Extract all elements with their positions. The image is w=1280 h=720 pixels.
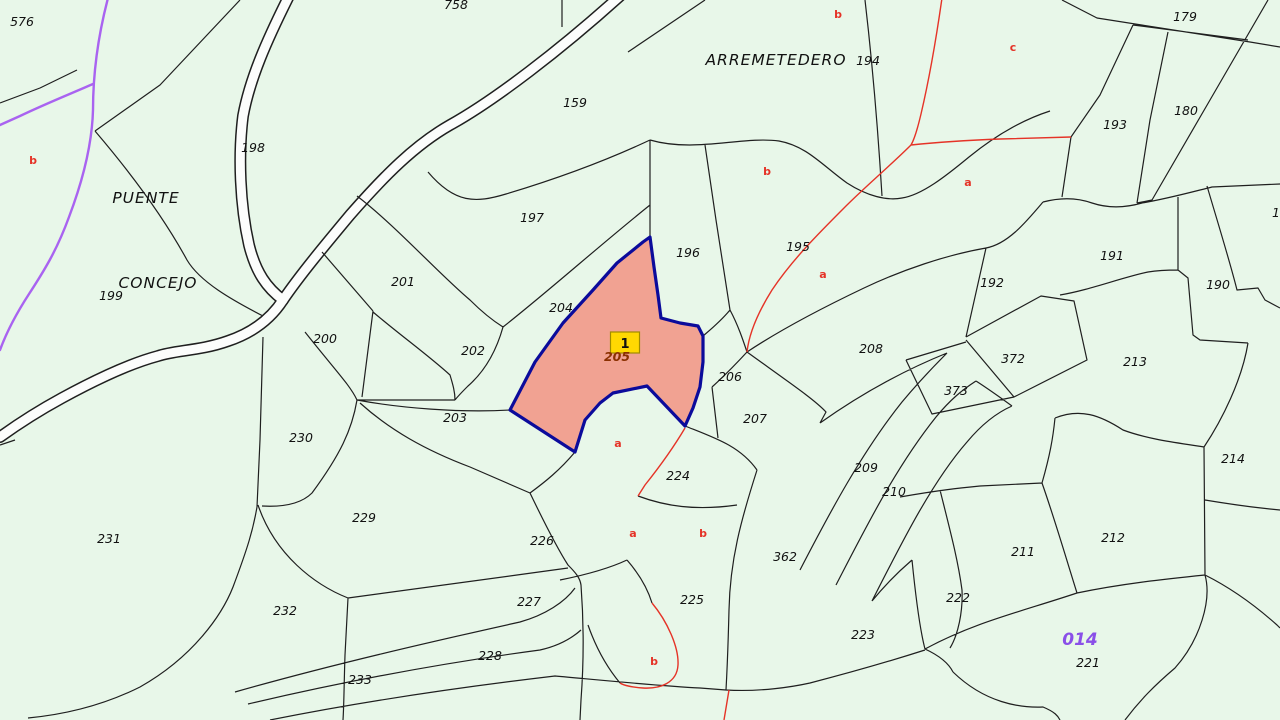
zone-number: 014 bbox=[1062, 630, 1098, 650]
parcel-label: 180 bbox=[1174, 103, 1198, 118]
place-name-label: ARREMETEDERO bbox=[704, 51, 846, 69]
subdivision-letter: b bbox=[650, 655, 658, 668]
parcel-label: 210 bbox=[882, 484, 906, 499]
parcel-label: 226 bbox=[530, 533, 554, 548]
parcel-label: 193 bbox=[1103, 117, 1127, 132]
parcel-label: 192 bbox=[980, 275, 1004, 290]
parcel-label: 232 bbox=[273, 603, 297, 618]
parcel-label: 211 bbox=[1011, 544, 1035, 559]
parcel-label: 224 bbox=[666, 468, 690, 483]
parcel-label: 223 bbox=[851, 627, 875, 642]
parcel-label: 197 bbox=[520, 210, 544, 225]
subdivision-letter: a bbox=[614, 437, 621, 450]
parcel-label: 194 bbox=[856, 53, 880, 68]
parcel-label: 159 bbox=[563, 95, 587, 110]
parcel-label: 206 bbox=[718, 369, 742, 384]
subdivision-letter: b bbox=[699, 527, 707, 540]
parcel-label: 233 bbox=[348, 672, 372, 687]
parcel-label: 230 bbox=[289, 430, 313, 445]
zone-number-label: 014 bbox=[1062, 630, 1098, 650]
parcel-label: 201 bbox=[391, 274, 415, 289]
parcel-label: 221 bbox=[1076, 655, 1100, 670]
subdivision-letter: b bbox=[834, 8, 842, 21]
place-name-label: CONCEJO bbox=[118, 274, 197, 292]
parcel-label: 208 bbox=[859, 341, 883, 356]
subdivision-letter: b bbox=[763, 165, 771, 178]
subdivision-letter: a bbox=[819, 268, 826, 281]
parcel-label: 225 bbox=[680, 592, 704, 607]
parcel-label: 222 bbox=[946, 590, 970, 605]
parcel-label: 198 bbox=[241, 140, 265, 155]
parcel-label: 228 bbox=[478, 648, 502, 663]
parcel-label: 229 bbox=[352, 510, 376, 525]
parcel-label: 200 bbox=[313, 331, 337, 346]
parcel-label: 227 bbox=[517, 594, 541, 609]
parcel-label: 191 bbox=[1100, 248, 1124, 263]
cadastral-map-viewport[interactable]: 1 205 5767581791801931941981591971961951… bbox=[0, 0, 1280, 720]
parcel-label: 195 bbox=[786, 239, 810, 254]
parcel-label: 207 bbox=[743, 411, 767, 426]
subdivision-letter: a bbox=[629, 527, 636, 540]
cadastral-map[interactable]: 1 205 5767581791801931941981591971961951… bbox=[0, 0, 1280, 720]
parcel-label: 196 bbox=[676, 245, 700, 260]
parcel-label: 212 bbox=[1101, 530, 1125, 545]
parcel-label: 231 bbox=[97, 531, 121, 546]
place-name-label: PUENTE bbox=[112, 189, 179, 207]
parcel-label: 202 bbox=[461, 343, 485, 358]
parcel-label: 204 bbox=[549, 300, 573, 315]
parcel-label: 213 bbox=[1123, 354, 1147, 369]
parcel-label: 576 bbox=[10, 14, 34, 29]
parcel-label: 373 bbox=[944, 383, 968, 398]
parcel-label: 362 bbox=[773, 549, 797, 564]
parcel-label: 190 bbox=[1206, 277, 1230, 292]
parcel-label: 214 bbox=[1221, 451, 1245, 466]
subdivision-letter: b bbox=[29, 154, 37, 167]
subdivision-letter: c bbox=[1010, 41, 1017, 54]
parcel-label: 372 bbox=[1001, 351, 1025, 366]
selected-parcel-number: 205 bbox=[604, 349, 630, 364]
parcel-label: 209 bbox=[854, 460, 878, 475]
parcel-label: 1 bbox=[1272, 205, 1280, 220]
subdivision-letter: a bbox=[964, 176, 971, 189]
parcel-label: 758 bbox=[444, 0, 468, 12]
parcel-label: 203 bbox=[443, 410, 467, 425]
parcel-label: 179 bbox=[1173, 9, 1197, 24]
